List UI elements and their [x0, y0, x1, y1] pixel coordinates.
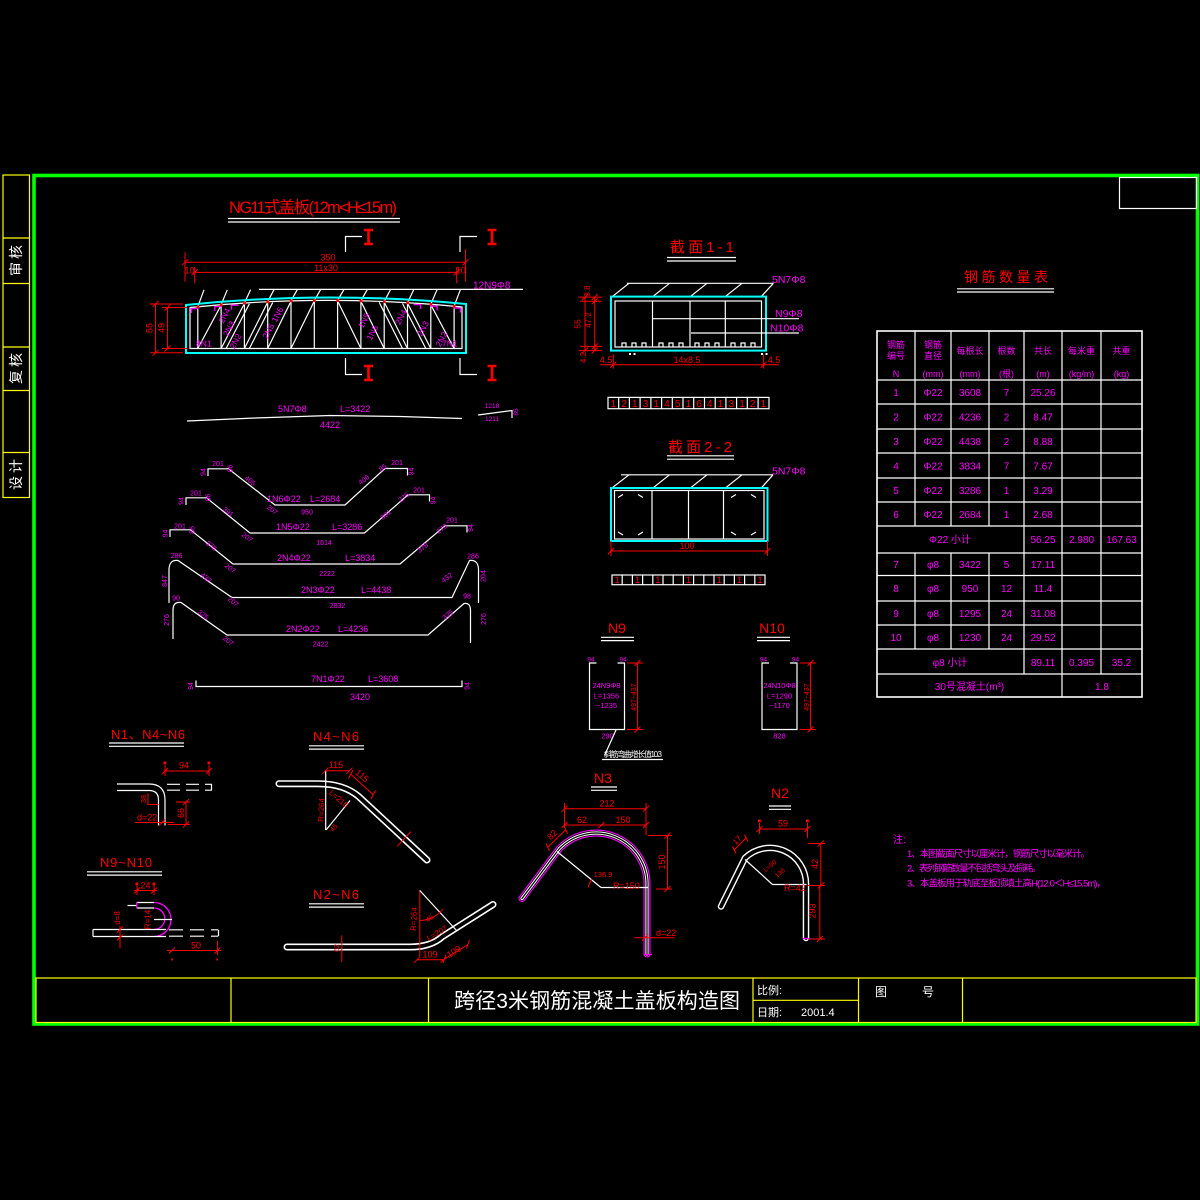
- svg-text:钢筋: 钢筋: [887, 339, 905, 350]
- svg-text:66: 66: [176, 808, 186, 818]
- svg-text:2: 2: [750, 399, 756, 410]
- svg-text:每根长: 每根长: [956, 345, 983, 356]
- svg-text:N10Φ8: N10Φ8: [770, 323, 804, 335]
- svg-text:10: 10: [456, 266, 466, 276]
- svg-text:(根): (根): [999, 368, 1014, 379]
- svg-text:(mm): (mm): [960, 369, 981, 379]
- svg-text:2222: 2222: [319, 571, 335, 578]
- svg-text:N9Φ8: N9Φ8: [775, 308, 803, 320]
- svg-text:3: 3: [643, 399, 649, 410]
- svg-text:φ8 小计: φ8 小计: [933, 656, 968, 669]
- svg-text:4: 4: [664, 399, 670, 410]
- svg-text:55: 55: [145, 323, 155, 333]
- svg-text:2001.4: 2001.4: [801, 1007, 835, 1019]
- svg-text:828: 828: [773, 732, 786, 741]
- svg-text:10: 10: [890, 633, 902, 644]
- svg-text:3.29: 3.29: [1033, 486, 1053, 497]
- svg-text:N9: N9: [608, 620, 626, 636]
- svg-text:设: 设: [8, 476, 24, 490]
- svg-text:950: 950: [301, 510, 313, 517]
- svg-text:7: 7: [1004, 462, 1010, 473]
- svg-text:核: 核: [8, 245, 24, 259]
- svg-text:150: 150: [615, 815, 630, 825]
- svg-text:跨径3米钢筋混凝土盖板构造图: 跨径3米钢筋混凝土盖板构造图: [454, 990, 740, 1013]
- svg-text:Φ22: Φ22: [923, 462, 943, 473]
- svg-text:N4~N6: N4~N6: [313, 729, 359, 744]
- svg-text:94: 94: [587, 657, 595, 664]
- svg-text:0.395: 0.395: [1069, 658, 1094, 669]
- svg-text:Φ22: Φ22: [923, 388, 943, 399]
- svg-text:10: 10: [184, 266, 194, 276]
- svg-text:共重: 共重: [1112, 345, 1130, 356]
- svg-text:1: 1: [632, 399, 638, 410]
- svg-text:d=22: d=22: [656, 928, 676, 938]
- svg-text:4422: 4422: [320, 420, 340, 430]
- svg-text:图: 图: [875, 985, 887, 999]
- svg-text:847: 847: [162, 575, 169, 587]
- svg-text:1: 1: [737, 575, 742, 585]
- svg-text:62: 62: [577, 815, 587, 825]
- svg-text:L=3608: L=3608: [368, 674, 398, 684]
- svg-text:每米重: 每米重: [1068, 345, 1095, 356]
- svg-text:4.2: 4.2: [579, 351, 588, 363]
- svg-text:49: 49: [157, 323, 167, 333]
- svg-text:3、本盖板用于轨底至板顶填土高H(12.0＜H≤15.5m): 3、本盖板用于轨底至板顶填土高H(12.0＜H≤15.5m)，: [907, 878, 1106, 890]
- svg-text:7.67: 7.67: [1033, 462, 1053, 473]
- svg-text:11x30: 11x30: [314, 263, 338, 273]
- svg-text:62: 62: [334, 944, 341, 952]
- svg-text:1: 1: [718, 399, 724, 410]
- svg-text:Φ22: Φ22: [923, 486, 943, 497]
- svg-text:7N1: 7N1: [442, 339, 458, 349]
- svg-text:1: 1: [686, 575, 691, 585]
- svg-text:94: 94: [619, 657, 627, 664]
- svg-text:R=42: R=42: [784, 883, 806, 893]
- svg-text:86: 86: [228, 465, 235, 473]
- svg-text:350: 350: [320, 253, 335, 263]
- svg-text:5: 5: [1004, 560, 1010, 571]
- svg-text:2.980: 2.980: [1069, 535, 1094, 546]
- svg-text:8.47: 8.47: [1033, 413, 1053, 424]
- svg-text:136.9: 136.9: [594, 870, 613, 879]
- svg-text:斜筋弯曲增长值10.3: 斜筋弯曲增长值10.3: [604, 749, 663, 759]
- svg-text:4438: 4438: [959, 437, 982, 448]
- svg-text:3: 3: [893, 437, 899, 448]
- svg-text:94: 94: [179, 761, 189, 771]
- svg-text:1: 1: [717, 575, 722, 585]
- svg-text:2422: 2422: [313, 642, 329, 649]
- svg-text:94: 94: [468, 524, 475, 532]
- svg-text:1614: 1614: [316, 540, 332, 547]
- svg-text:5: 5: [675, 399, 681, 410]
- svg-text:94: 94: [188, 682, 195, 690]
- svg-text:497~437: 497~437: [631, 683, 638, 711]
- svg-text:1N5Φ22: 1N5Φ22: [276, 522, 310, 532]
- svg-text:56.25: 56.25: [1030, 535, 1055, 546]
- svg-text:47.2: 47.2: [584, 312, 593, 328]
- svg-text:φ8: φ8: [927, 633, 939, 644]
- svg-text:201: 201: [174, 524, 186, 531]
- svg-text:计: 计: [8, 459, 24, 473]
- svg-text:3286: 3286: [959, 486, 982, 497]
- svg-text:276: 276: [164, 614, 171, 626]
- svg-text:Φ22: Φ22: [923, 510, 943, 521]
- svg-text:2: 2: [1004, 437, 1010, 448]
- svg-text:25.26: 25.26: [1030, 388, 1055, 399]
- svg-text:~1235: ~1235: [596, 701, 617, 710]
- svg-text:N2: N2: [771, 785, 789, 801]
- svg-text:L=1290: L=1290: [767, 692, 792, 701]
- svg-text:167.63: 167.63: [1106, 535, 1137, 546]
- svg-text:24N9Φ8: 24N9Φ8: [592, 681, 620, 690]
- svg-text:号: 号: [922, 985, 934, 999]
- svg-text:950: 950: [962, 584, 979, 595]
- svg-text:35.2: 35.2: [1112, 658, 1132, 669]
- svg-text:42: 42: [810, 859, 820, 869]
- svg-text:1: 1: [761, 399, 767, 410]
- svg-text:24N10Φ8: 24N10Φ8: [763, 681, 795, 690]
- svg-text:94: 94: [465, 682, 472, 690]
- svg-text:100: 100: [679, 541, 694, 551]
- svg-text:24: 24: [1001, 609, 1013, 620]
- svg-text:日期:: 日期:: [757, 1006, 782, 1019]
- svg-text:比例:: 比例:: [757, 983, 782, 997]
- svg-text:5N7Φ8: 5N7Φ8: [772, 274, 806, 286]
- svg-text:~1170: ~1170: [769, 701, 790, 710]
- svg-text:1: 1: [739, 399, 745, 410]
- svg-text:R=150: R=150: [613, 881, 640, 891]
- svg-text:86: 86: [190, 526, 197, 534]
- svg-text:50: 50: [191, 941, 201, 951]
- svg-text:14x8.5: 14x8.5: [673, 355, 700, 365]
- svg-text:7N1Φ22: 7N1Φ22: [311, 674, 345, 684]
- svg-text:1: 1: [635, 575, 640, 585]
- svg-text:L=3422: L=3422: [340, 404, 370, 414]
- svg-text:φ8: φ8: [927, 584, 939, 595]
- svg-text:8N1: 8N1: [196, 339, 212, 349]
- svg-text:钢筋数量表: 钢筋数量表: [964, 269, 1048, 285]
- svg-text:94: 94: [792, 657, 800, 664]
- svg-text:201: 201: [190, 491, 202, 498]
- svg-text:85: 85: [513, 408, 520, 416]
- svg-text:2N3Φ22: 2N3Φ22: [301, 585, 335, 595]
- svg-text:1、本图截面尺寸以厘米计，钢筋尺寸以毫米计。: 1、本图截面尺寸以厘米计，钢筋尺寸以毫米计。: [907, 848, 1090, 860]
- svg-text:5N7Φ8: 5N7Φ8: [278, 404, 307, 414]
- svg-text:L=4236: L=4236: [338, 624, 368, 634]
- svg-text:1: 1: [1004, 510, 1010, 521]
- svg-text:注:: 注:: [893, 833, 906, 846]
- svg-text:1: 1: [893, 388, 899, 399]
- svg-text:24: 24: [140, 881, 150, 891]
- svg-text:94: 94: [163, 530, 170, 538]
- svg-text:3608: 3608: [959, 388, 982, 399]
- svg-text:6: 6: [893, 510, 899, 521]
- svg-text:89.11: 89.11: [1031, 658, 1056, 669]
- svg-text:94: 94: [179, 497, 186, 505]
- svg-text:1: 1: [611, 399, 617, 410]
- svg-text:1295: 1295: [959, 609, 982, 620]
- svg-text:2: 2: [893, 413, 899, 424]
- svg-text:86: 86: [206, 494, 213, 502]
- svg-text:1N6Φ22: 1N6Φ22: [267, 494, 301, 504]
- svg-text:1230: 1230: [959, 633, 982, 644]
- svg-text:286: 286: [171, 553, 183, 560]
- svg-text:115: 115: [329, 760, 343, 770]
- svg-text:11.4: 11.4: [1034, 584, 1053, 595]
- svg-text:N10: N10: [759, 620, 785, 636]
- svg-text:7: 7: [1004, 388, 1010, 399]
- svg-text:204: 204: [481, 570, 488, 582]
- svg-text:Φ22: Φ22: [923, 437, 943, 448]
- svg-text:1: 1: [655, 575, 660, 585]
- svg-text:3: 3: [729, 399, 735, 410]
- svg-text:8: 8: [893, 584, 899, 595]
- svg-text:编号: 编号: [887, 350, 905, 361]
- svg-text:201: 201: [212, 461, 224, 468]
- svg-text:复: 复: [8, 370, 24, 384]
- svg-text:276: 276: [481, 613, 488, 625]
- svg-text:94: 94: [760, 657, 768, 664]
- svg-text:4236: 4236: [959, 413, 982, 424]
- svg-text:4.5: 4.5: [768, 355, 781, 365]
- svg-text:共长: 共长: [1034, 345, 1052, 356]
- svg-text:38: 38: [139, 795, 148, 803]
- svg-text:17.11: 17.11: [1031, 560, 1056, 571]
- svg-text:L=2684: L=2684: [310, 494, 340, 504]
- svg-text:1211: 1211: [485, 416, 499, 423]
- svg-text:(mm): (mm): [923, 369, 944, 379]
- svg-text:150: 150: [657, 854, 667, 869]
- svg-text:2684: 2684: [959, 510, 982, 521]
- svg-text:6: 6: [696, 399, 702, 410]
- svg-text:201: 201: [446, 518, 458, 525]
- svg-text:2: 2: [1004, 413, 1010, 424]
- svg-text:12: 12: [1001, 584, 1013, 595]
- svg-text:2.68: 2.68: [1033, 510, 1053, 521]
- svg-text:7: 7: [893, 560, 899, 571]
- svg-text:94: 94: [431, 497, 438, 505]
- svg-text:3834: 3834: [959, 462, 982, 473]
- svg-text:L=3834: L=3834: [345, 553, 375, 563]
- svg-text:5N7Φ8: 5N7Φ8: [772, 466, 806, 478]
- svg-text:1: 1: [1004, 486, 1010, 497]
- svg-text:31.08: 31.08: [1030, 609, 1055, 620]
- svg-text:(kg): (kg): [1114, 369, 1130, 379]
- svg-text:3420: 3420: [350, 692, 370, 702]
- svg-text:3.8: 3.8: [583, 285, 592, 297]
- svg-text:1: 1: [653, 399, 659, 410]
- svg-text:核: 核: [8, 353, 24, 367]
- svg-text:Φ22: Φ22: [923, 413, 943, 424]
- svg-text:NG11式盖板(12m<H≤15m): NG11式盖板(12m<H≤15m): [229, 198, 397, 217]
- svg-text:201: 201: [413, 488, 425, 495]
- svg-text:2N2Φ22: 2N2Φ22: [286, 624, 320, 634]
- svg-text:N2~N6: N2~N6: [313, 887, 359, 902]
- svg-text:5: 5: [893, 486, 899, 497]
- svg-text:(kg/m): (kg/m): [1069, 369, 1095, 379]
- svg-text:55: 55: [573, 319, 583, 329]
- svg-text:59: 59: [778, 819, 788, 829]
- svg-text:2: 2: [621, 399, 627, 410]
- svg-text:R=264: R=264: [409, 906, 419, 931]
- svg-text:Φ22 小计: Φ22 小计: [929, 533, 971, 546]
- svg-text:4: 4: [893, 462, 899, 473]
- svg-text:审: 审: [8, 262, 24, 276]
- svg-text:201: 201: [391, 460, 403, 467]
- svg-text:φ8: φ8: [927, 609, 939, 620]
- svg-text:直径: 直径: [924, 350, 942, 361]
- svg-text:3422: 3422: [959, 560, 982, 571]
- svg-text:钢筋: 钢筋: [924, 339, 942, 350]
- svg-text:4.5: 4.5: [600, 355, 613, 365]
- svg-text:R=14: R=14: [144, 909, 153, 929]
- svg-text:30号混凝土(m³): 30号混凝土(m³): [935, 680, 1004, 693]
- svg-text:R=264: R=264: [316, 797, 326, 822]
- svg-text:φ8: φ8: [927, 560, 939, 571]
- svg-text:8.88: 8.88: [1033, 437, 1053, 448]
- svg-text:29.52: 29.52: [1030, 633, 1055, 644]
- svg-text:94: 94: [201, 468, 208, 476]
- svg-text:N1、N4~N6: N1、N4~N6: [111, 727, 185, 742]
- svg-text:1: 1: [615, 575, 620, 585]
- svg-text:98: 98: [463, 594, 471, 601]
- svg-text:497~437: 497~437: [804, 683, 811, 711]
- svg-text:24: 24: [1001, 633, 1013, 644]
- svg-text:90: 90: [172, 596, 180, 603]
- svg-text:N9~N10: N9~N10: [100, 855, 152, 870]
- svg-text:9: 9: [893, 609, 899, 620]
- svg-text:N: N: [893, 369, 900, 379]
- svg-text:L=3286: L=3286: [332, 522, 362, 532]
- svg-text:94: 94: [409, 468, 416, 476]
- svg-text:4: 4: [707, 399, 713, 410]
- svg-text:2832: 2832: [330, 603, 346, 610]
- svg-text:2、表列钢筋数量不包括弯头及损耗。: 2、表列钢筋数量不包括弯头及损耗。: [907, 863, 1041, 875]
- svg-text:1.8: 1.8: [1095, 682, 1109, 693]
- svg-text:2N4Φ22: 2N4Φ22: [277, 553, 311, 563]
- svg-text:1: 1: [757, 575, 762, 585]
- svg-text:212: 212: [599, 799, 614, 809]
- svg-text:1: 1: [686, 399, 692, 410]
- svg-text:1218: 1218: [485, 403, 500, 410]
- svg-text:L=4438: L=4438: [361, 585, 391, 595]
- svg-text:109: 109: [422, 950, 437, 960]
- svg-text:L=1356: L=1356: [594, 692, 619, 701]
- svg-text:293: 293: [808, 903, 818, 918]
- svg-text:d=22: d=22: [137, 813, 157, 823]
- svg-text:(m): (m): [1036, 369, 1050, 379]
- svg-text:N3: N3: [594, 770, 612, 786]
- svg-text:根数: 根数: [997, 345, 1015, 356]
- svg-text:286: 286: [467, 554, 479, 561]
- svg-text:d=8: d=8: [113, 911, 122, 925]
